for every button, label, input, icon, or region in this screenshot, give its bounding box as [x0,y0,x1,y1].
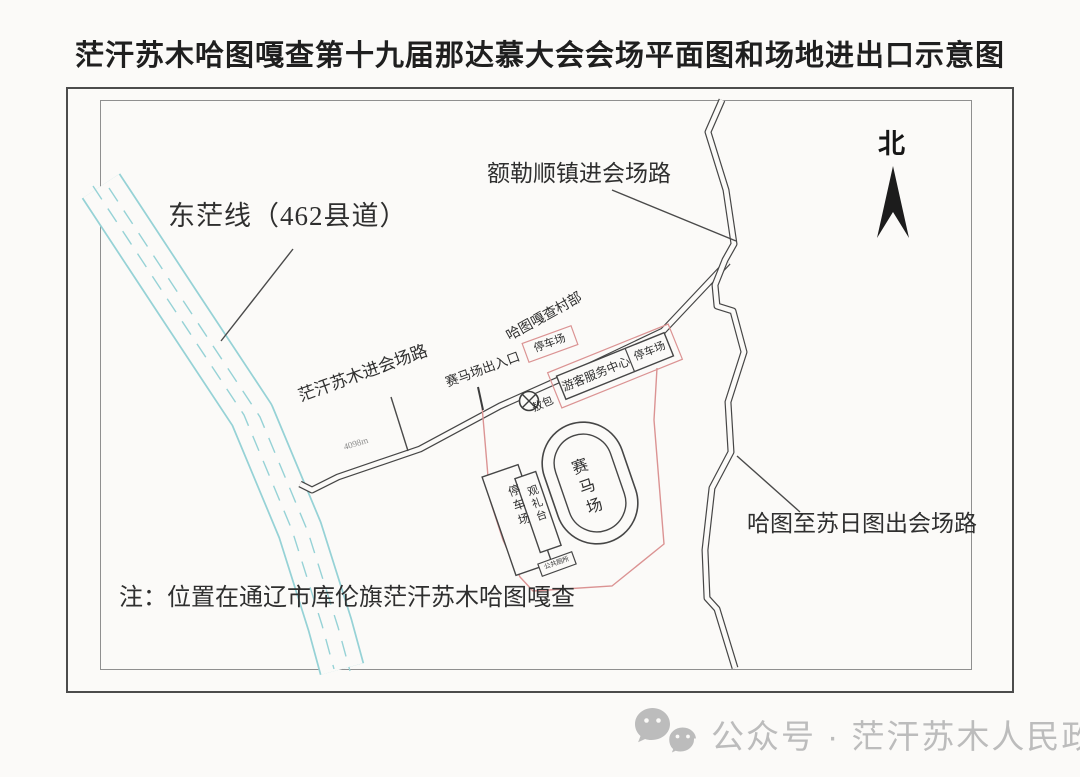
leader-manghan-road [391,397,408,451]
leader-county-road [221,249,293,341]
county-road-label: 东茫线（462县道） [168,203,408,230]
wechat-big-eye-left [644,718,649,723]
wechat-big-bubble [635,708,670,742]
site-plan-drawing [0,0,1080,777]
hatu-surit-exit-road-label: 哈图至苏日图出会场路 [747,512,977,535]
racecourse-gate-tick [478,387,483,410]
wechat-account-text: 公众号 · 茫汗苏木人民政府 [711,710,1080,758]
wechat-icon [633,707,697,761]
location-note: 注：位置在通辽市库伦旗茫汗苏木哈图嘎查 [119,586,575,610]
leader-exit-road [737,456,800,512]
wechat-big-eye-right [656,718,661,723]
wechat-small-bubble [668,727,697,755]
wechat-watermark: 公众号 · 茫汗苏木人民政府 [633,703,1080,765]
scanned-map-page: 茫汗苏木哈图嘎查第十九届那达慕大会会场平面图和场地进出口示意图 [0,0,1080,777]
north-arrow-icon [877,166,909,238]
eleshun-entry-road-label: 额勒顺镇进会场路 [487,162,671,185]
leader-eleshun-road [612,190,736,241]
wechat-small-eye-left [676,735,680,739]
wechat-small-eye-right [686,735,690,739]
right-road-fill [705,100,744,668]
north-label: 北 [878,131,905,158]
right-road [705,100,744,668]
